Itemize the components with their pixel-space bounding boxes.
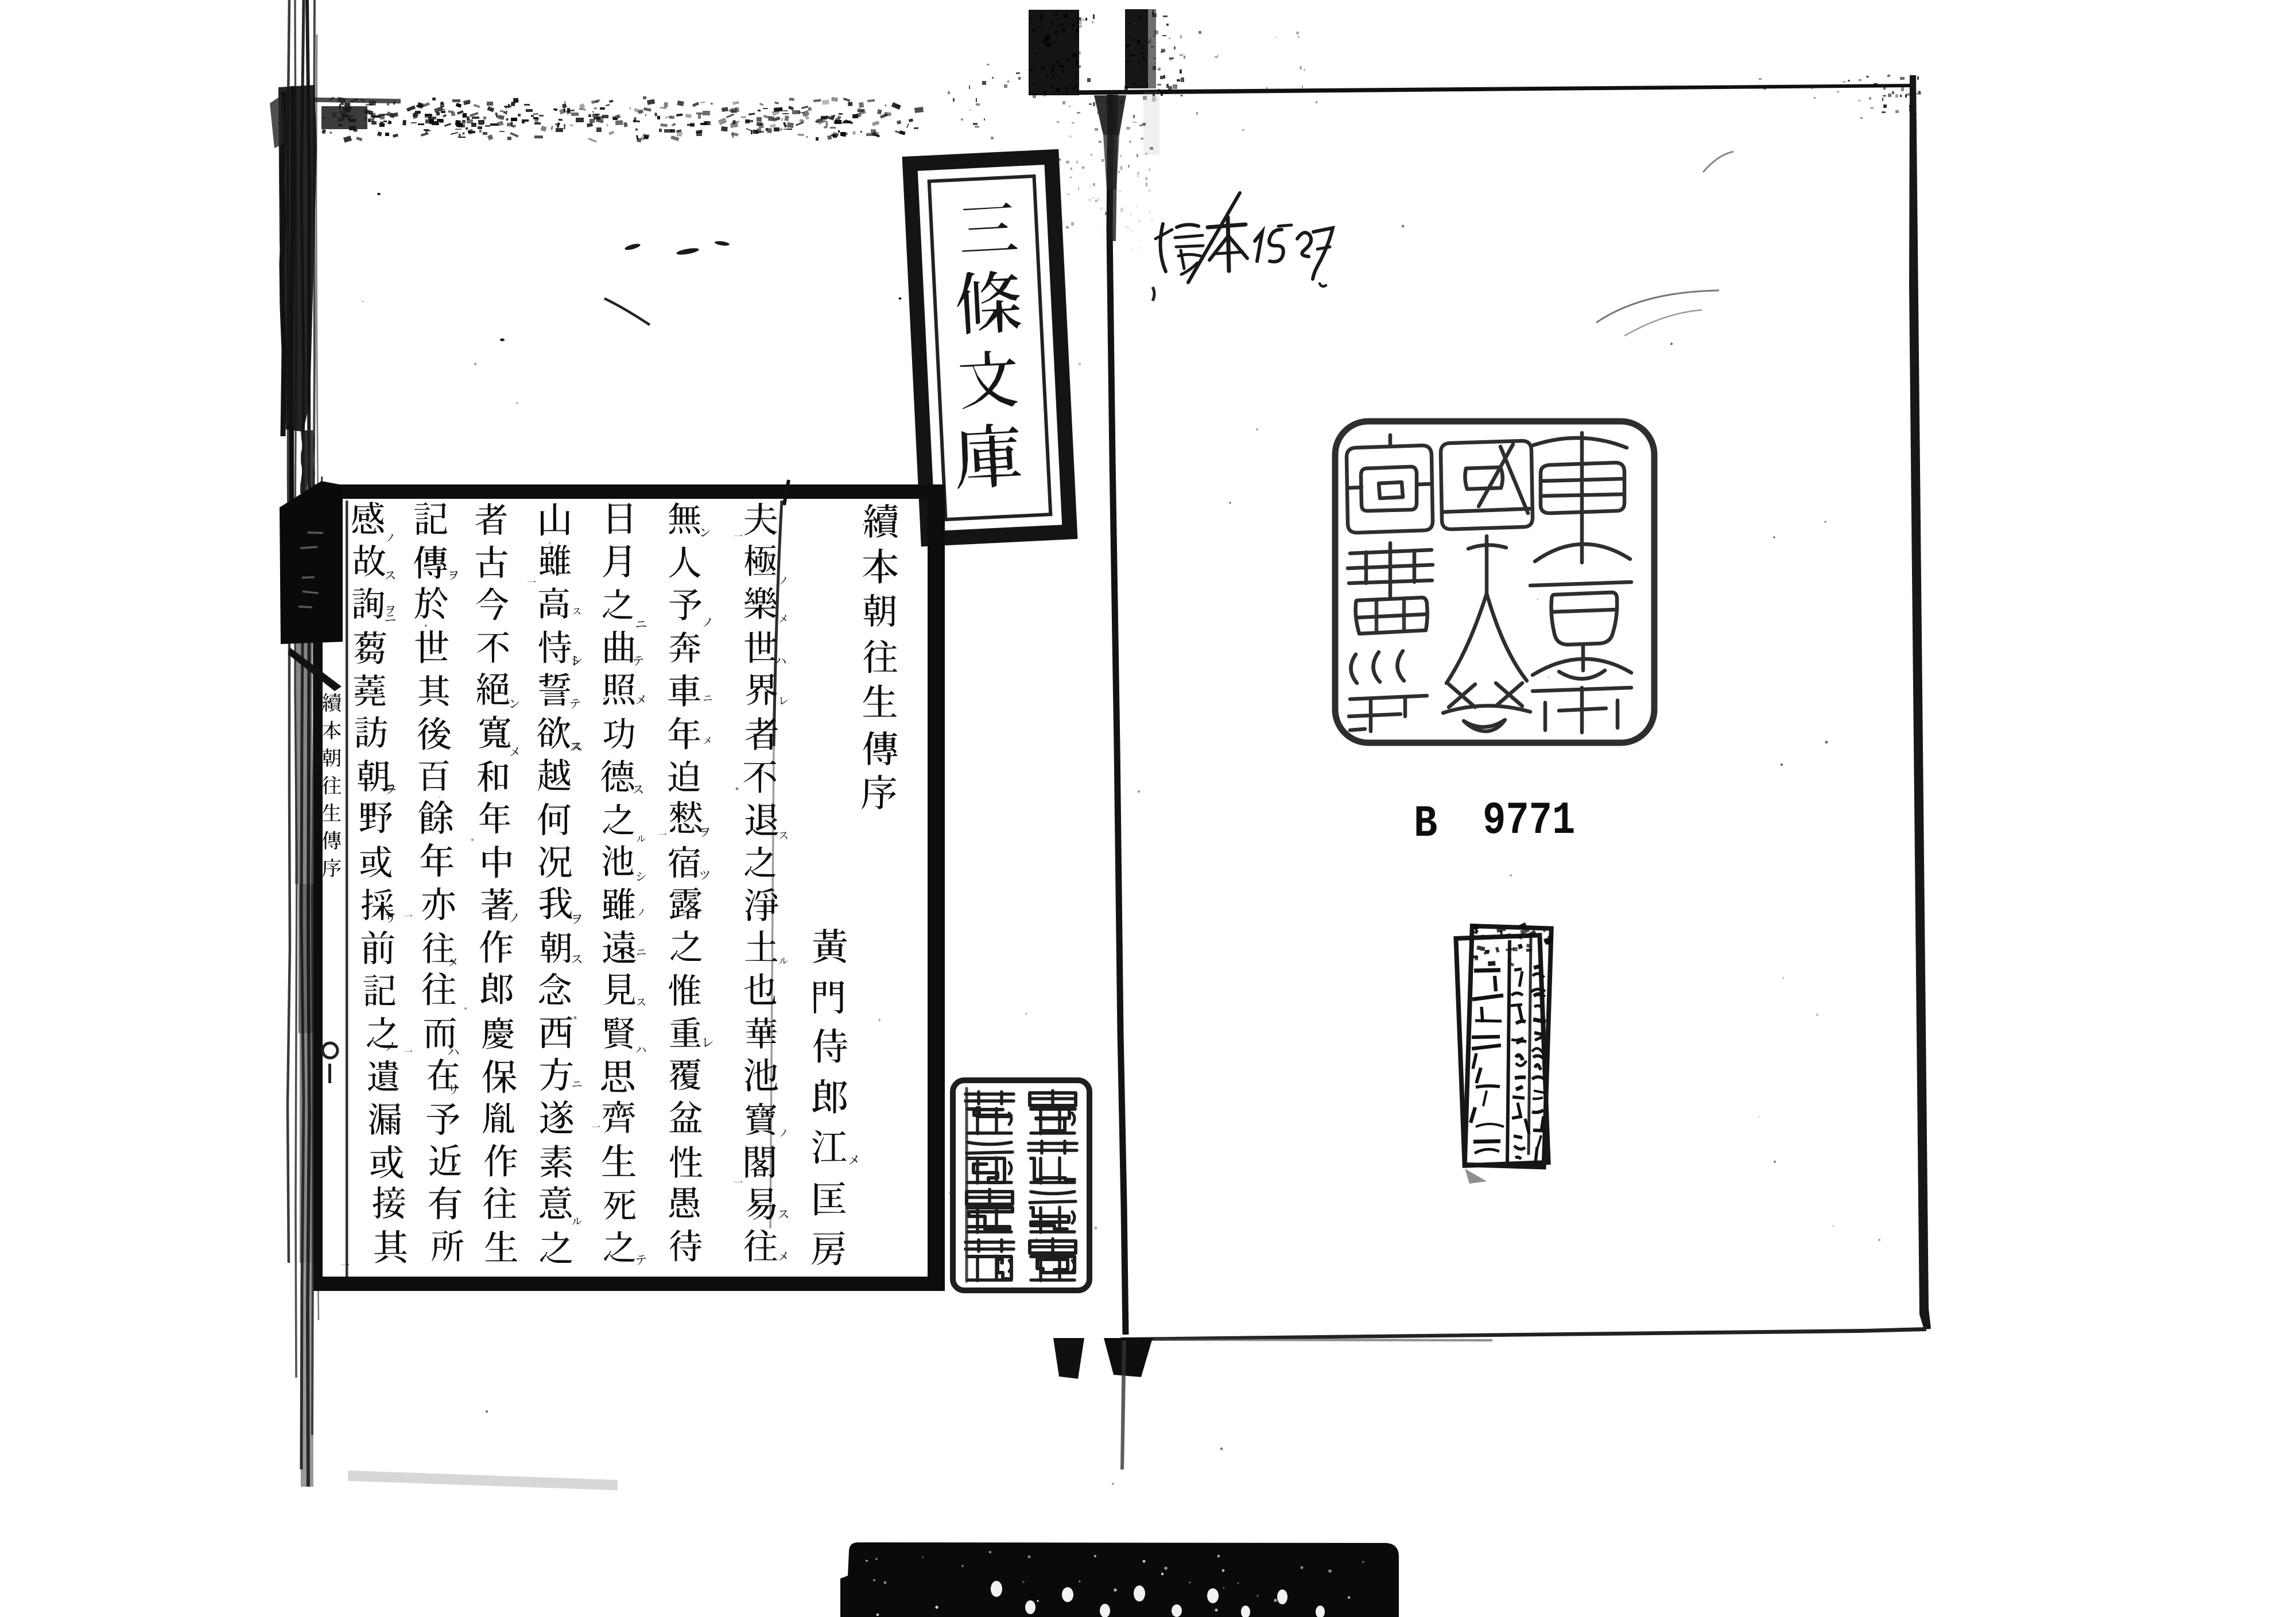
svg-text:B: B bbox=[1414, 799, 1437, 850]
svg-text:9771: 9771 bbox=[1483, 796, 1575, 847]
